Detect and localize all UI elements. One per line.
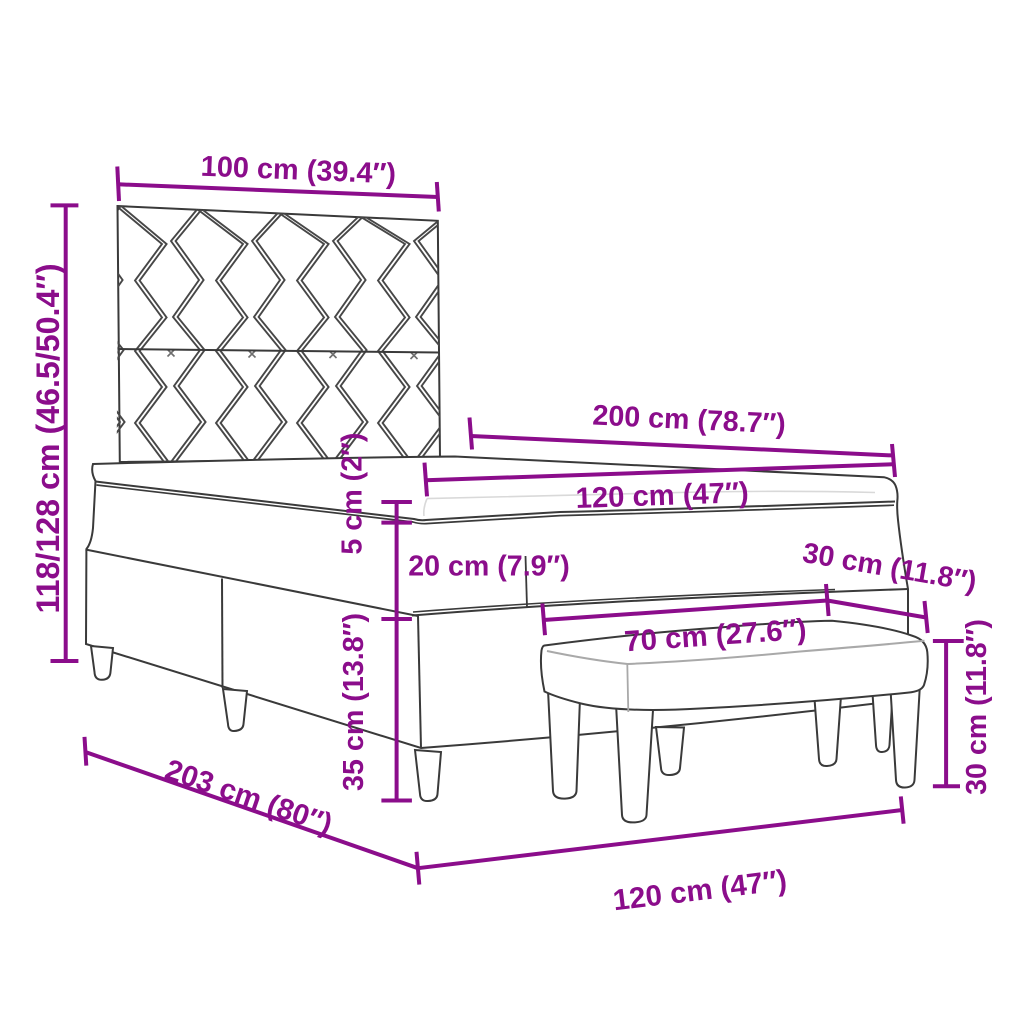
svg-text:30 cm (11.8″): 30 cm (11.8″) — [961, 619, 993, 795]
svg-text:35 cm (13.8″): 35 cm (13.8″) — [338, 613, 370, 791]
svg-text:5 cm (2″): 5 cm (2″) — [337, 433, 369, 555]
svg-text:120 cm (47″): 120 cm (47″) — [575, 477, 749, 515]
svg-text:118/128 cm (46.5/50.4″): 118/128 cm (46.5/50.4″) — [30, 263, 66, 613]
svg-text:20 cm (7.9″): 20 cm (7.9″) — [408, 551, 570, 583]
